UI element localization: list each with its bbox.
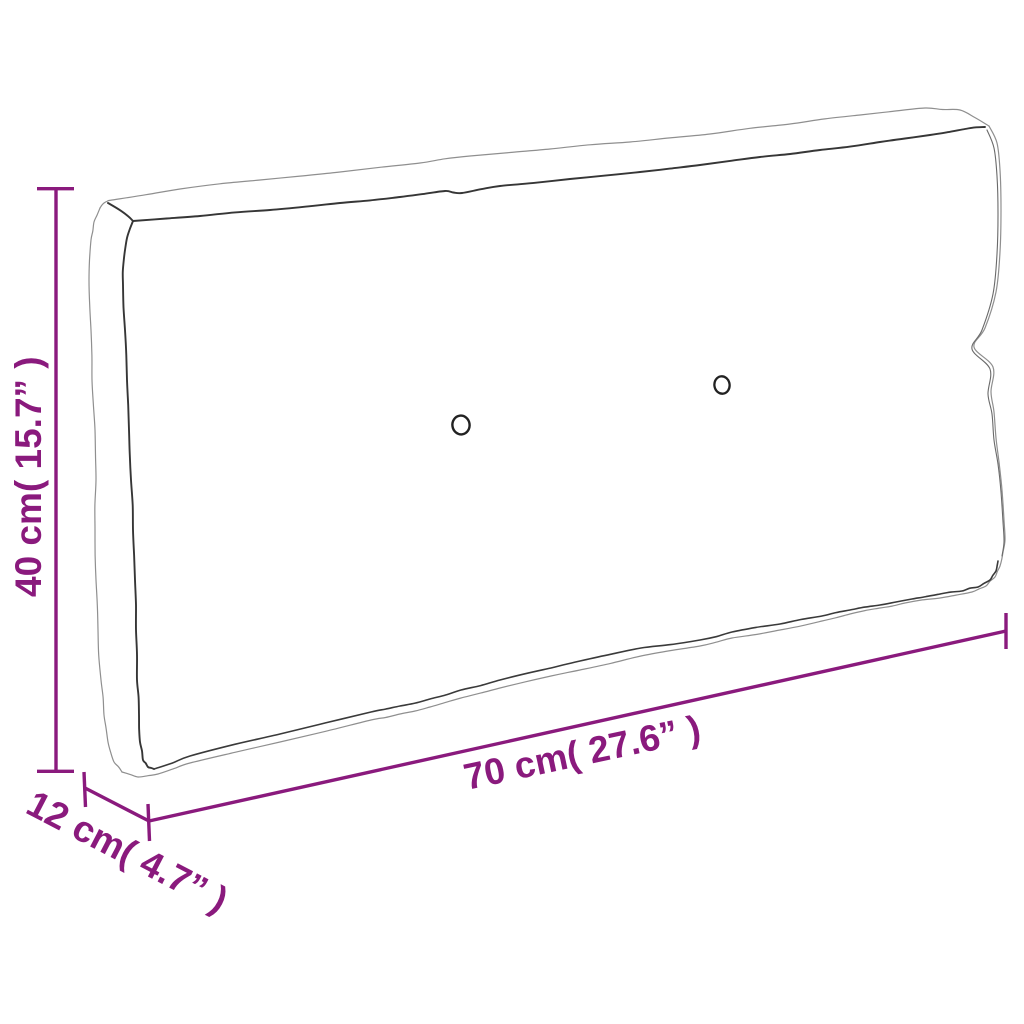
svg-text:40 cm( 15.7” ): 40 cm( 15.7” ) bbox=[8, 356, 49, 597]
